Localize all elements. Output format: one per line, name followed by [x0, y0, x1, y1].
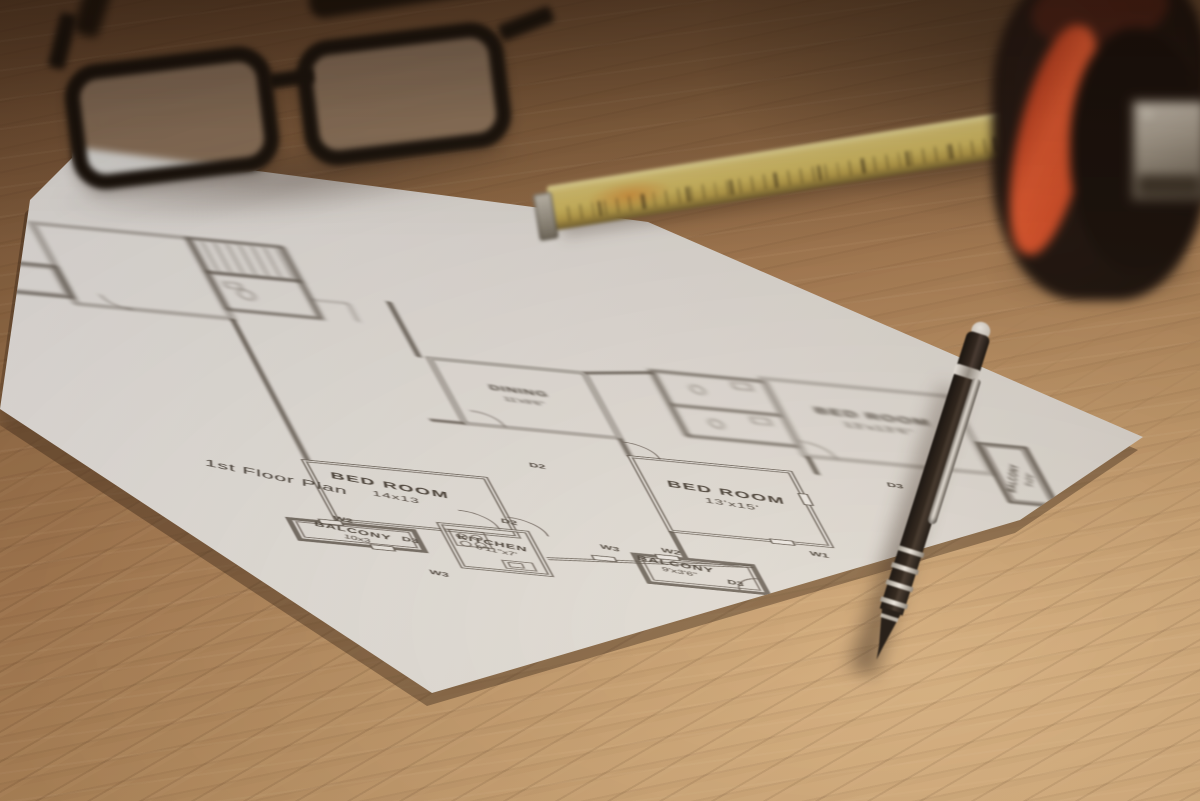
- tag-w3b: W3: [600, 544, 621, 554]
- glasses-temple-arm-icon: [307, 0, 505, 20]
- tag-w1: W1: [809, 550, 830, 560]
- tag-d3c: D3: [886, 482, 905, 491]
- glasses-left-lens: [61, 43, 283, 193]
- sink-icon: [502, 560, 536, 571]
- tape-clip-screw-icon: [1142, 110, 1153, 121]
- tape-measure-body: [992, 0, 1200, 300]
- tape-body-belt-clip: [1128, 96, 1200, 204]
- balcony-far-right-label: BALCONY: [1005, 463, 1021, 494]
- glasses-temple-arm-icon: [72, 0, 118, 39]
- tag-d2a: D2: [528, 462, 547, 471]
- reading-glasses: [40, 0, 585, 220]
- photo-scene: BED ROOM 13'x13'6" DINING 11'x9'6" BALCO…: [0, 0, 1200, 801]
- glasses-hinge-icon: [47, 12, 77, 70]
- tape-clip-slot: [1138, 175, 1200, 195]
- room-bedroom-top-right: BED ROOM 13'x13'6": [811, 405, 939, 439]
- tag-d3b: D3: [727, 579, 745, 588]
- glasses-right-lens: [293, 19, 515, 169]
- glasses-hinge-icon: [497, 5, 555, 42]
- balcony-far-right-dims: 9'x3'6": [1023, 472, 1036, 488]
- tag-w3a: W3: [429, 569, 450, 579]
- room-dining: DINING 11'x9'6": [486, 383, 557, 409]
- toilet-icon: [685, 378, 776, 434]
- dining-label: DINING: [487, 383, 550, 399]
- toilet-icon: [224, 282, 257, 300]
- room-bedroom-right: BED ROOM 13'x15': [663, 479, 794, 516]
